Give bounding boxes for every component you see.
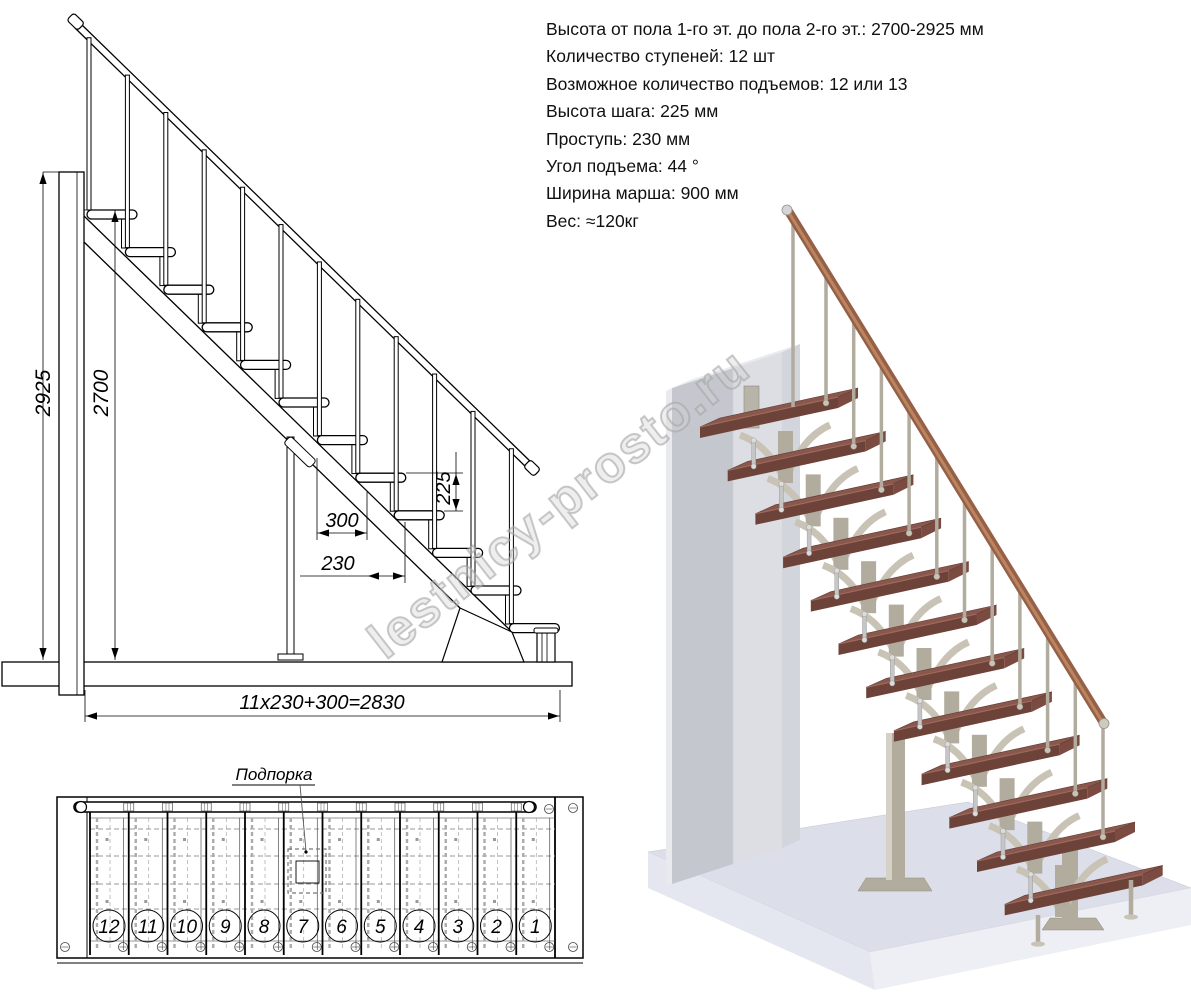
plan-step-number: 3 <box>453 917 464 938</box>
dim-step-depth: 300 <box>325 510 358 532</box>
support-label: Подпорка <box>236 765 313 784</box>
spec-line-tread: Проступь: 230 мм <box>546 126 1106 153</box>
plan-step-number: 2 <box>490 917 502 938</box>
render-3d-staircase <box>648 205 1191 990</box>
spec-line-rise-count: Возможное количество подъемов: 12 или 13 <box>546 71 1106 98</box>
spec-line-height-range: Высота от пола 1-го эт. до пола 2-го эт.… <box>546 16 1106 43</box>
dim-flight-height: 2700 <box>90 369 113 417</box>
dim-step-rise: 225 <box>433 470 455 505</box>
plan-step-number: 11 <box>138 917 158 938</box>
spec-block: Высота от пола 1-го эт. до пола 2-го эт.… <box>546 16 1106 235</box>
plan-view <box>57 785 583 963</box>
dim-tread-depth: 230 <box>320 553 354 575</box>
plan-step-number: 12 <box>98 917 120 938</box>
spec-line-step-height: Высота шага: 225 мм <box>546 98 1106 125</box>
spec-line-step-count: Количество ступеней: 12 шт <box>546 43 1106 70</box>
dim-total-height: 2925 <box>32 369 55 417</box>
dim-total-run: 11x230+300=2830 <box>239 692 404 714</box>
plan-step-number: 8 <box>259 917 270 938</box>
spec-line-weight: Вес: ≈120кг <box>546 208 1106 235</box>
plan-step-number: 1 <box>530 917 541 938</box>
elevation-drawing <box>2 13 572 722</box>
drawing-page: 2925 2700 300 230 225 11x230+300=2830 По… <box>0 0 1191 993</box>
plan-step-number: 9 <box>220 917 231 938</box>
plan-step-number: 4 <box>414 917 425 938</box>
plan-step-number: 10 <box>176 917 198 938</box>
plan-step-number: 5 <box>375 917 386 938</box>
plan-step-number: 7 <box>298 917 310 938</box>
spec-line-width: Ширина марша: 900 мм <box>546 180 1106 207</box>
spec-line-angle: Угол подъема: 44 ° <box>546 153 1106 180</box>
plan-step-number: 6 <box>336 917 347 938</box>
